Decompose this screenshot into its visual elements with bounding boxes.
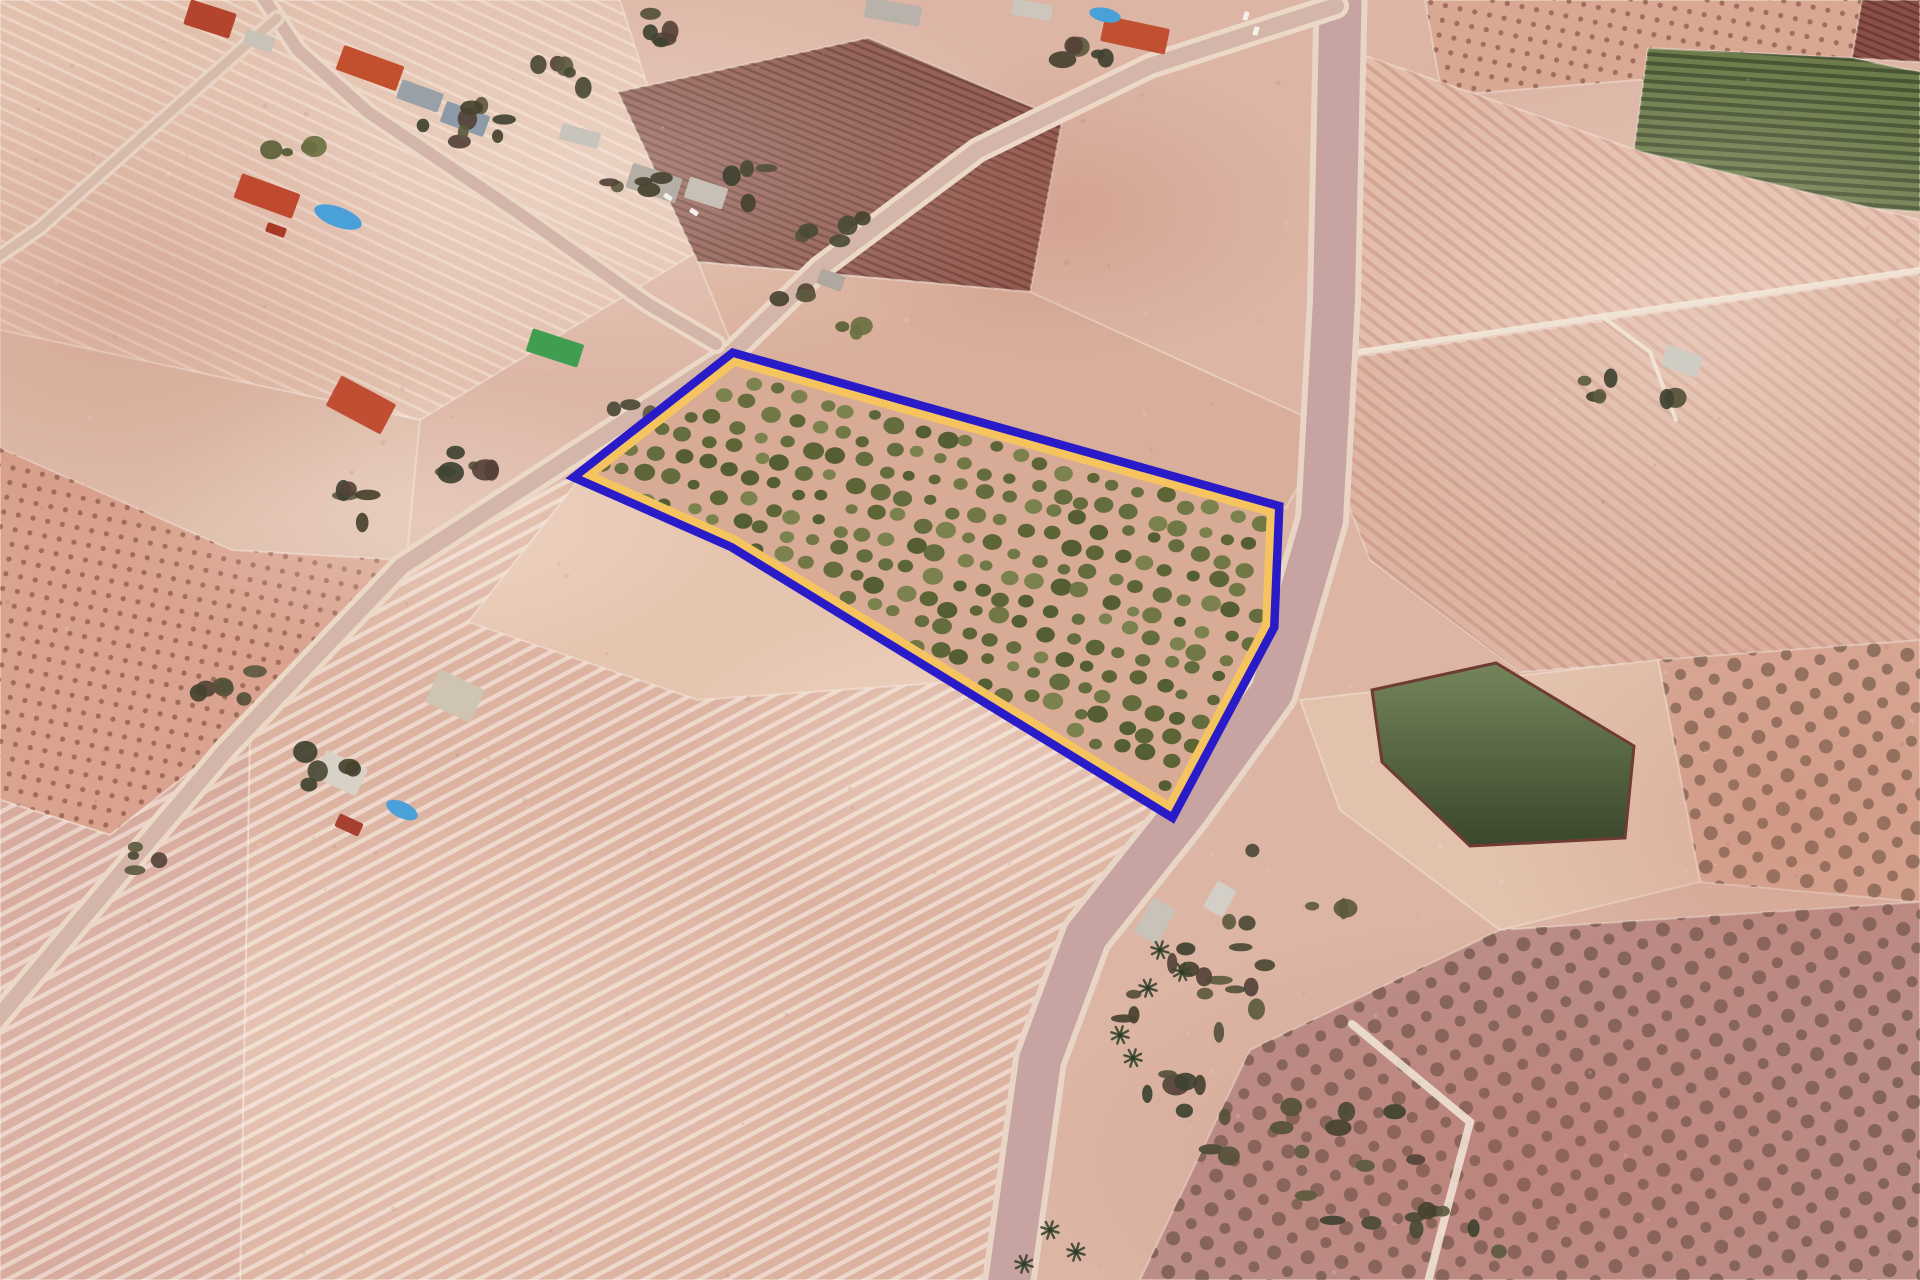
satellite-image	[0, 0, 1920, 1280]
aerial-parcel-map	[0, 0, 1920, 1280]
